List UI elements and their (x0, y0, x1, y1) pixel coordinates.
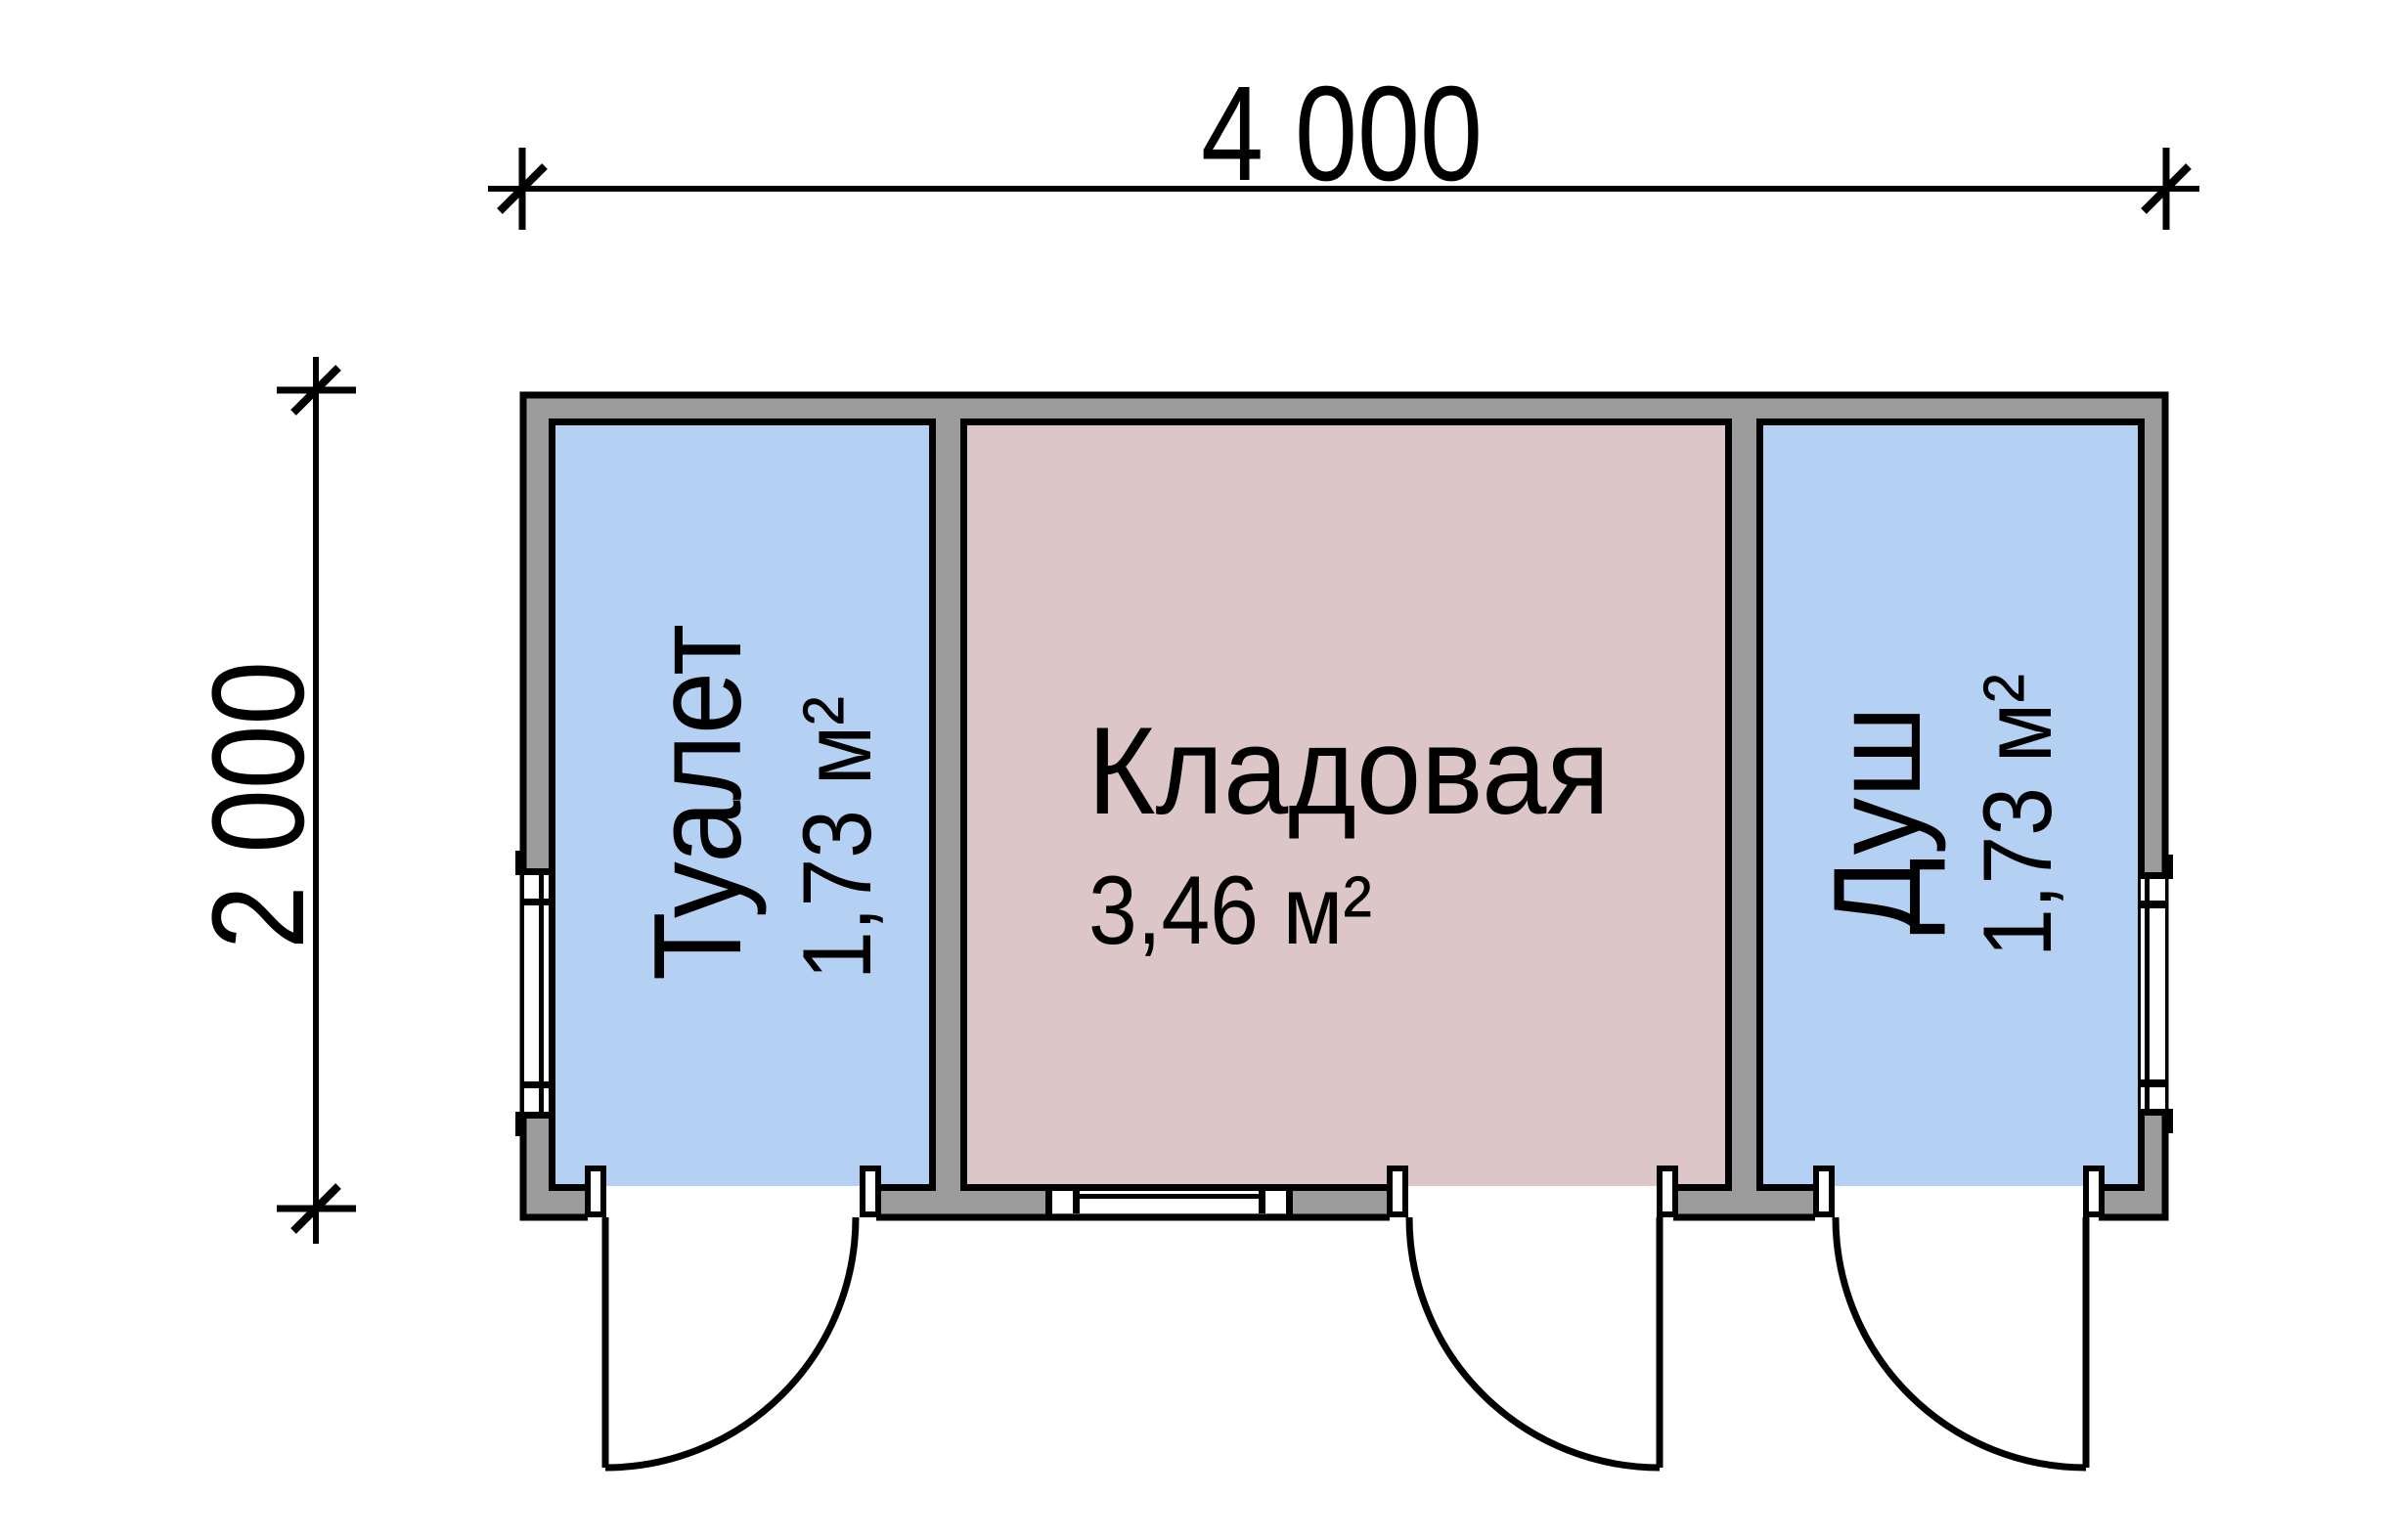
svg-text:Кладовая: Кладовая (1087, 701, 1610, 840)
svg-text:Душ: Душ (1807, 706, 1946, 935)
svg-text:1,73 м²: 1,73 м² (1963, 674, 2071, 957)
svg-text:1,73 м²: 1,73 м² (782, 696, 891, 980)
svg-text:2 000: 2 000 (186, 661, 332, 949)
svg-text:4 000: 4 000 (1201, 59, 1483, 209)
svg-text:3,46 м²: 3,46 м² (1088, 856, 1372, 964)
svg-text:Туалет: Туалет (628, 624, 767, 981)
